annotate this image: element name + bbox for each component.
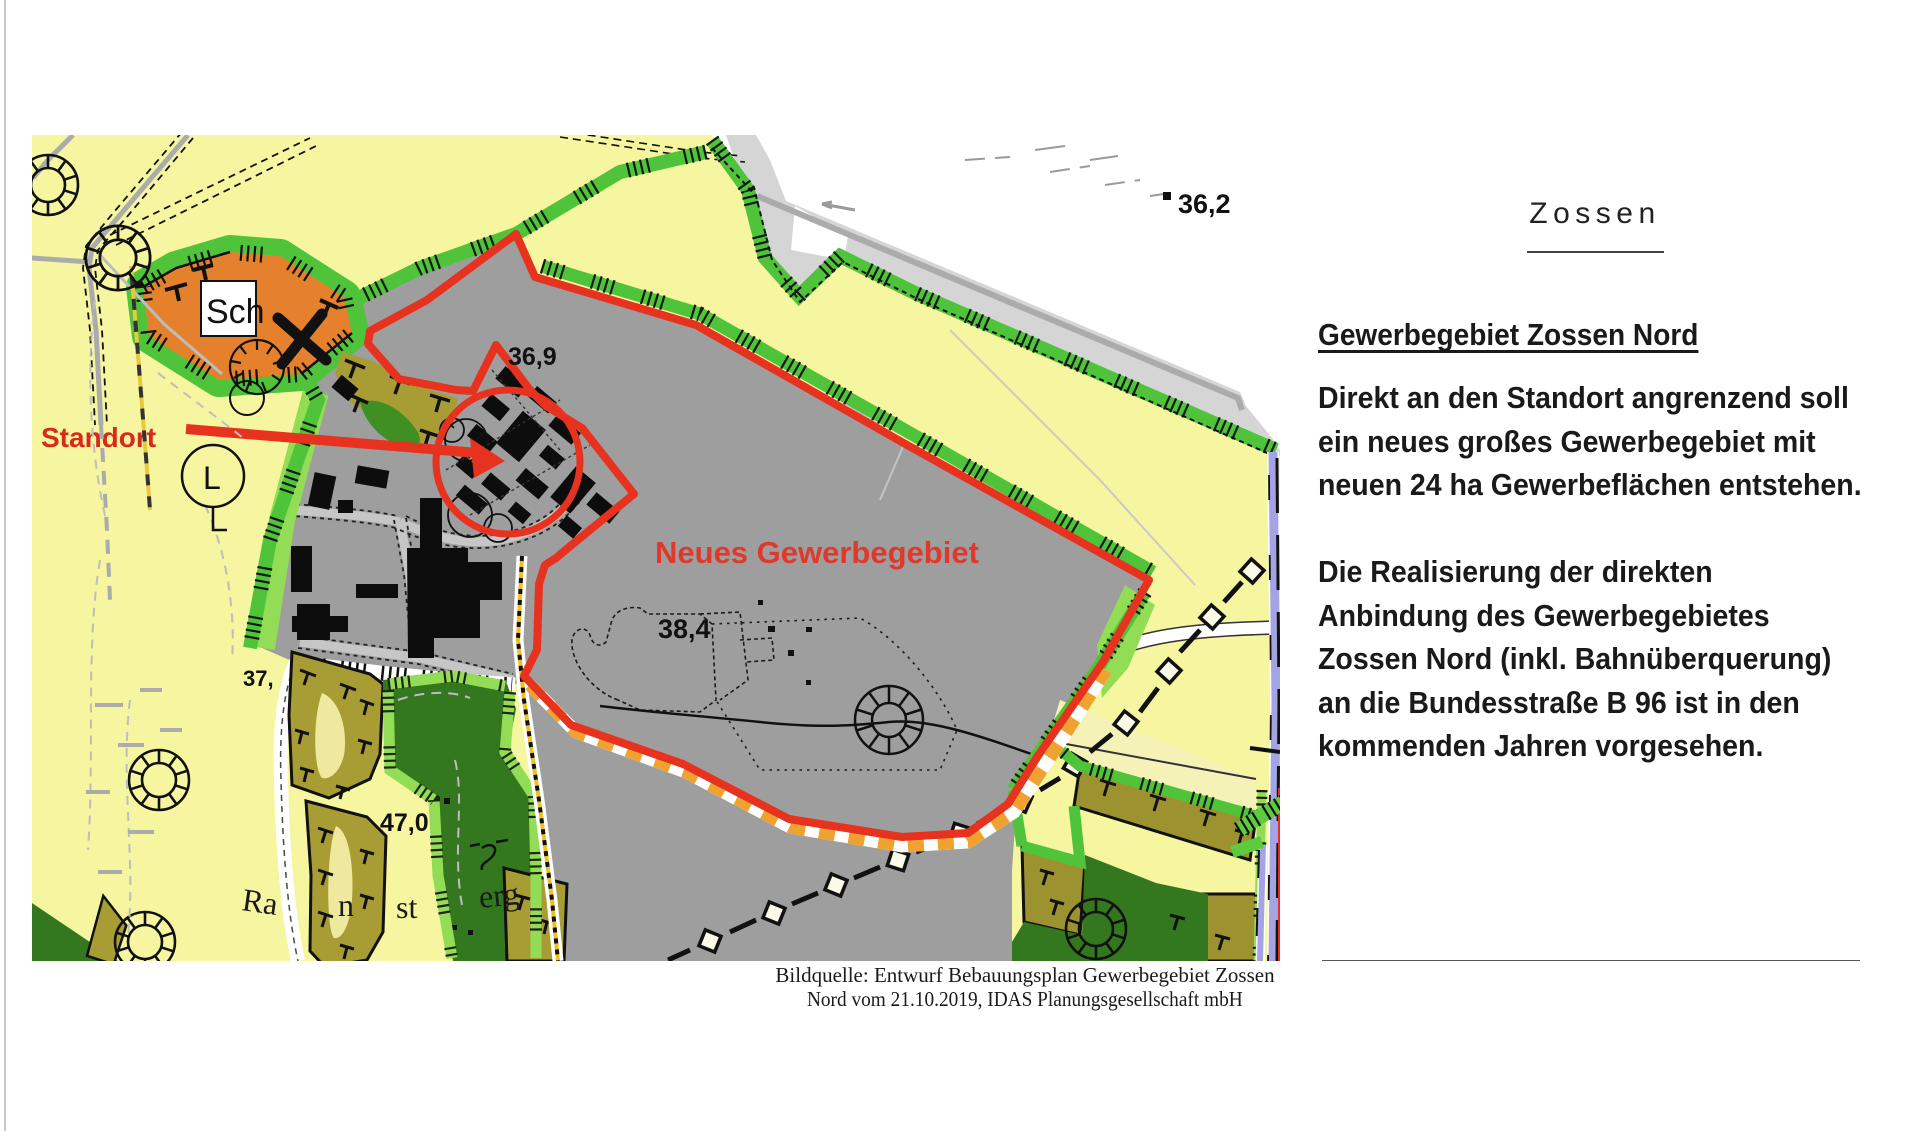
svg-text:37,: 37, — [243, 666, 274, 691]
svg-text:Sch: Sch — [206, 293, 265, 331]
svg-text:36,2: 36,2 — [1178, 189, 1231, 219]
svg-text:38,4: 38,4 — [658, 614, 711, 644]
svg-text:L: L — [203, 460, 221, 496]
svg-text:st: st — [396, 889, 417, 925]
svg-text:36,9: 36,9 — [508, 343, 557, 371]
svg-text:erg: erg — [477, 875, 521, 915]
svg-text:n: n — [338, 887, 354, 923]
svg-text:Standort: Standort — [41, 422, 156, 453]
svg-text:47,0: 47,0 — [380, 809, 429, 837]
svg-text:Neues Gewerbegebiet: Neues Gewerbegebiet — [655, 535, 979, 570]
svg-text:Ra: Ra — [240, 881, 280, 922]
